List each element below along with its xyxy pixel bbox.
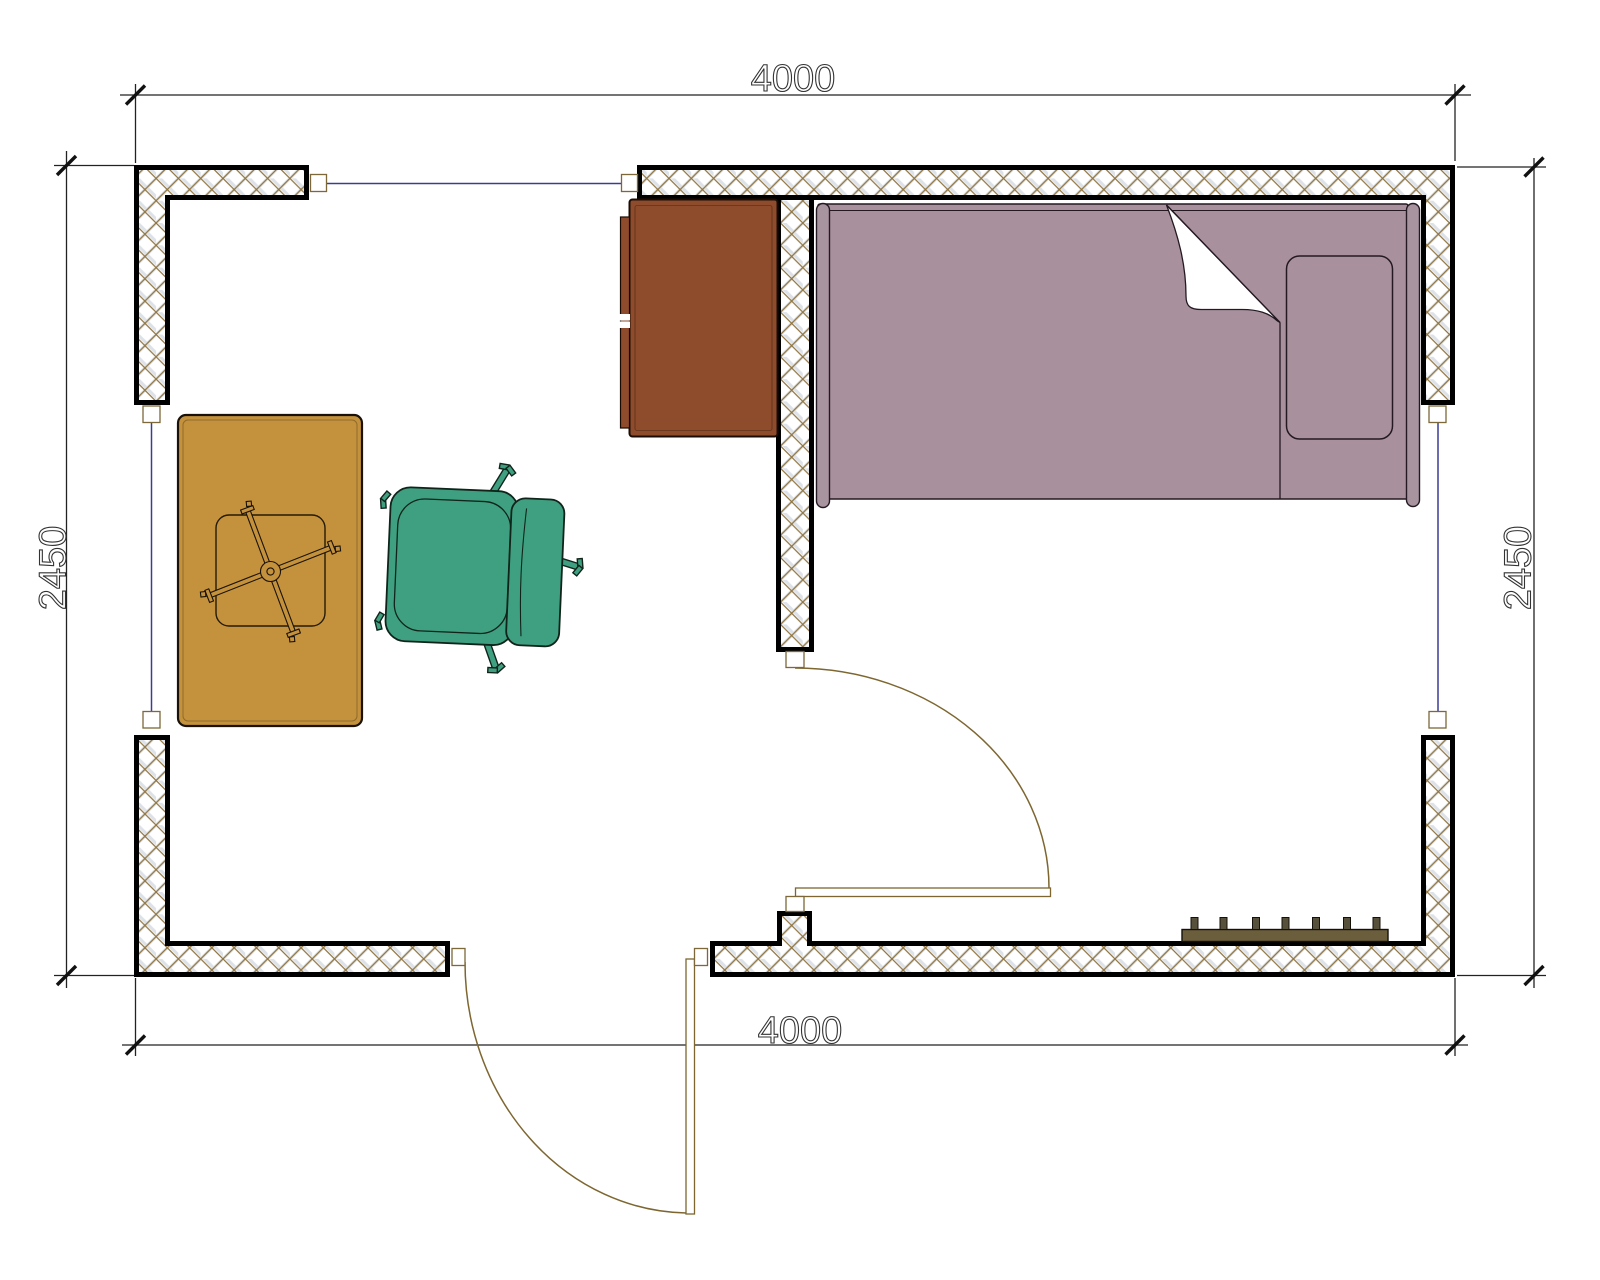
svg-text:4000: 4000	[751, 58, 836, 100]
svg-text:4000: 4000	[758, 1010, 843, 1052]
svg-text:2450: 2450	[33, 526, 75, 611]
svg-text:2450: 2450	[1498, 526, 1540, 611]
